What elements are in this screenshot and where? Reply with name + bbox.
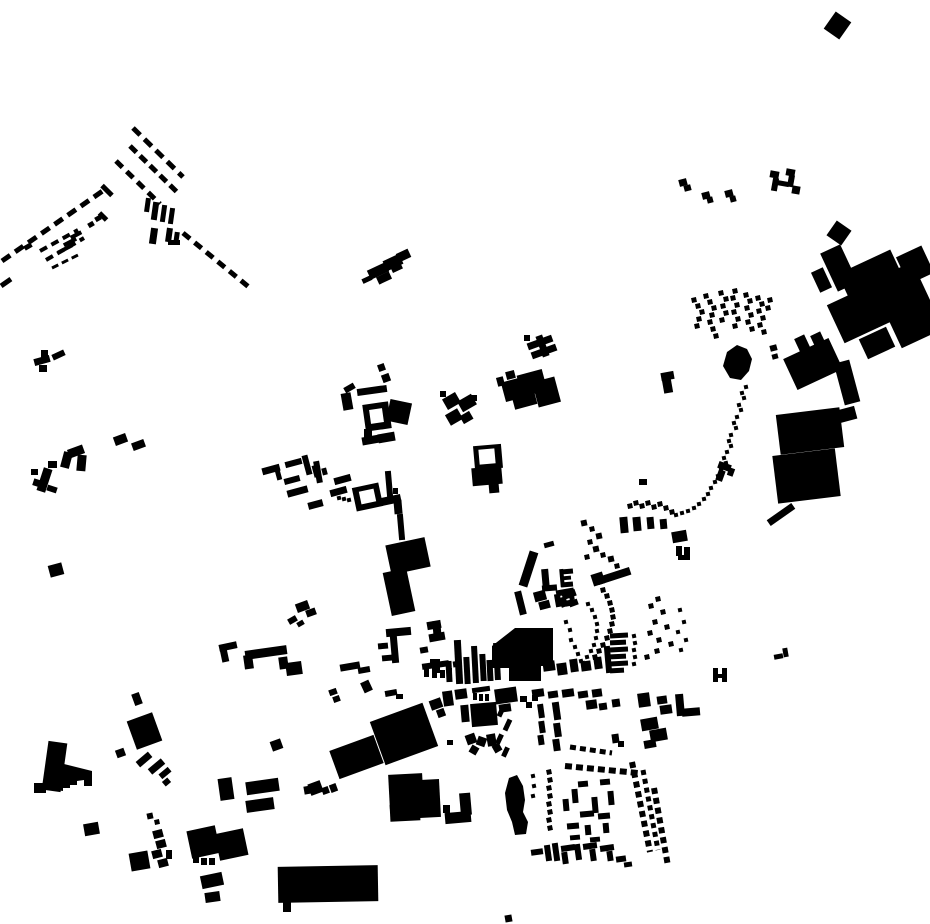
building-footprint bbox=[151, 849, 163, 859]
building-footprint bbox=[343, 383, 356, 394]
building-footprint bbox=[501, 746, 510, 757]
building-footprint bbox=[115, 748, 126, 759]
small-building-dot bbox=[568, 628, 573, 633]
small-building-dot bbox=[579, 659, 584, 664]
small-building-dot bbox=[731, 309, 737, 315]
small-building-dot bbox=[734, 426, 739, 431]
small-building-dot bbox=[655, 596, 661, 602]
building-footprint bbox=[424, 669, 429, 677]
building-footprint bbox=[278, 865, 379, 903]
building-footprint bbox=[378, 643, 388, 650]
small-building-dot bbox=[697, 502, 702, 507]
building-footprint bbox=[639, 479, 647, 485]
small-building-dot bbox=[546, 817, 552, 823]
small-building-dot bbox=[573, 645, 578, 650]
building-footprint bbox=[149, 228, 158, 245]
small-building-dot bbox=[760, 315, 766, 321]
small-building-dot bbox=[707, 319, 713, 325]
building-footprint bbox=[574, 844, 582, 861]
small-building-dot bbox=[547, 793, 553, 799]
figure-ground-map bbox=[0, 0, 930, 924]
building-footprint bbox=[285, 661, 303, 676]
building-footprint bbox=[286, 485, 308, 497]
small-building-dot bbox=[744, 385, 749, 390]
building-footprint bbox=[396, 694, 403, 699]
building-footprint bbox=[519, 550, 539, 587]
small-building-dot bbox=[716, 474, 721, 479]
small-building-dot bbox=[531, 794, 536, 799]
building-footprint bbox=[285, 458, 303, 468]
building-footprint bbox=[553, 723, 562, 738]
small-building-dot bbox=[742, 396, 747, 401]
building-footprint bbox=[548, 690, 559, 698]
building-footprint bbox=[357, 385, 388, 396]
building-footprint bbox=[430, 659, 440, 666]
small-building-dot bbox=[592, 545, 599, 552]
building-footprint bbox=[607, 791, 614, 805]
building-footprint bbox=[46, 485, 57, 494]
small-building-dot bbox=[654, 648, 660, 654]
building-footprint bbox=[532, 688, 545, 698]
small-building-dot bbox=[713, 333, 719, 339]
small-building-dot bbox=[709, 312, 715, 318]
building-footprint bbox=[443, 805, 450, 813]
terraced-row bbox=[570, 747, 612, 753]
building-footprint bbox=[471, 646, 479, 683]
building-footprint bbox=[39, 365, 47, 372]
building-footprint bbox=[447, 740, 453, 745]
map-canvas bbox=[0, 0, 930, 924]
small-building-dot bbox=[686, 509, 691, 514]
building-footprint bbox=[340, 661, 361, 671]
building-footprint bbox=[772, 448, 840, 503]
small-building-dot bbox=[663, 505, 669, 511]
building-footprint bbox=[473, 693, 477, 700]
small-building-dot bbox=[734, 302, 740, 308]
building-footprint bbox=[168, 240, 180, 245]
small-building-dot bbox=[735, 415, 740, 420]
building-footprint bbox=[168, 208, 175, 225]
building-footprint bbox=[578, 781, 588, 788]
building-footprint bbox=[220, 648, 230, 662]
small-building-dot bbox=[678, 608, 683, 613]
small-building-dot bbox=[547, 777, 553, 783]
building-footprint bbox=[131, 692, 143, 706]
building-footprint bbox=[34, 783, 46, 793]
small-building-dot bbox=[146, 812, 153, 819]
building-footprint bbox=[100, 184, 113, 197]
building-footprint bbox=[578, 690, 589, 698]
building-footprint bbox=[611, 698, 620, 707]
building-footprint bbox=[329, 486, 347, 497]
small-building-dot bbox=[729, 433, 734, 438]
building-footprint bbox=[514, 591, 527, 616]
small-building-dot bbox=[647, 630, 653, 636]
building-footprint bbox=[218, 777, 235, 801]
building-footprint bbox=[436, 708, 446, 718]
building-footprint bbox=[390, 803, 421, 822]
building-footprint-polygon bbox=[492, 628, 553, 681]
small-building-dot bbox=[532, 784, 537, 789]
small-building-dot bbox=[546, 769, 552, 775]
small-building-dot bbox=[743, 292, 749, 298]
building-footprint bbox=[544, 845, 552, 862]
building-footprint bbox=[41, 350, 48, 359]
terraced-row bbox=[52, 255, 78, 268]
small-building-dot bbox=[724, 461, 729, 466]
building-footprint bbox=[361, 275, 372, 284]
small-building-dot bbox=[627, 503, 633, 509]
small-building-dot bbox=[725, 450, 730, 455]
small-building-dot bbox=[757, 322, 763, 328]
small-building-dot bbox=[727, 439, 732, 444]
small-building-dot bbox=[709, 486, 714, 491]
small-building-dot bbox=[590, 608, 595, 613]
small-building-dot bbox=[740, 391, 745, 396]
building-footprint bbox=[215, 828, 249, 860]
small-building-dot bbox=[547, 809, 553, 815]
building-footprint bbox=[454, 640, 463, 684]
building-footprint bbox=[610, 654, 626, 660]
small-building-dot bbox=[569, 638, 574, 643]
small-building-dot bbox=[767, 297, 773, 303]
building-footprint bbox=[245, 778, 279, 795]
building-footprint bbox=[662, 378, 673, 393]
small-building-dot bbox=[723, 296, 729, 302]
building-footprint bbox=[87, 221, 95, 228]
terraced-row bbox=[133, 128, 183, 177]
building-footprint bbox=[782, 648, 788, 658]
building-footprint bbox=[152, 829, 164, 839]
small-building-dot bbox=[711, 305, 717, 311]
building-footprint bbox=[538, 721, 546, 734]
building-footprint bbox=[610, 668, 624, 674]
building-footprint bbox=[552, 739, 561, 752]
building-footprint bbox=[598, 812, 610, 819]
building-footprint bbox=[496, 376, 505, 387]
small-building-dot bbox=[607, 600, 613, 606]
small-building-dot bbox=[656, 637, 662, 643]
building-footprint bbox=[590, 837, 600, 843]
building-footprint bbox=[321, 786, 330, 795]
building-footprint bbox=[463, 657, 470, 684]
building-footprint bbox=[377, 432, 395, 444]
small-building-dot bbox=[600, 587, 606, 593]
small-building-dot bbox=[722, 456, 727, 461]
small-building-dot bbox=[745, 319, 751, 325]
building-footprint bbox=[31, 469, 38, 475]
small-building-dot bbox=[720, 303, 726, 309]
building-footprint bbox=[397, 514, 405, 540]
building-footprint bbox=[332, 695, 341, 703]
building-footprint bbox=[329, 735, 383, 779]
small-building-dot bbox=[633, 641, 638, 646]
small-building-dot bbox=[652, 619, 658, 625]
building-footprint bbox=[505, 370, 516, 380]
building-footprint bbox=[671, 530, 688, 543]
small-building-dot bbox=[587, 539, 593, 545]
building-footprint bbox=[520, 696, 527, 702]
building-footprint bbox=[834, 360, 861, 406]
small-building-dot bbox=[737, 403, 742, 408]
building-footprint bbox=[476, 736, 488, 748]
building-footprint bbox=[186, 825, 220, 858]
building-footprint bbox=[0, 277, 12, 288]
small-building-dot bbox=[154, 819, 160, 825]
small-building-dot bbox=[347, 498, 352, 503]
building-footprint bbox=[632, 517, 641, 532]
small-building-dot bbox=[657, 501, 663, 507]
small-building-dot bbox=[584, 554, 590, 560]
building-footprint bbox=[610, 661, 628, 667]
building-footprint bbox=[526, 702, 532, 708]
small-building-dot bbox=[664, 624, 670, 630]
building-footprint bbox=[570, 835, 580, 841]
building-footprint bbox=[640, 717, 659, 732]
small-building-dot bbox=[337, 496, 342, 501]
building-footprint bbox=[485, 694, 489, 701]
small-building-dot bbox=[765, 305, 771, 311]
small-building-dot bbox=[607, 628, 613, 634]
small-building-dot bbox=[744, 305, 750, 311]
building-footprint bbox=[201, 858, 207, 865]
building-footprint bbox=[769, 344, 777, 352]
building-footprint bbox=[590, 571, 605, 586]
building-footprint bbox=[600, 779, 610, 786]
building-footprint bbox=[616, 855, 627, 862]
building-footprint bbox=[454, 688, 467, 700]
building-footprint bbox=[360, 680, 373, 694]
building-footprint bbox=[442, 690, 454, 706]
building-footprint bbox=[537, 704, 545, 719]
small-building-dot bbox=[632, 634, 637, 639]
building-footprint bbox=[567, 822, 579, 829]
building-footprint bbox=[479, 694, 483, 701]
building-footprint bbox=[610, 640, 626, 646]
building-footprint bbox=[245, 797, 274, 813]
small-building-dot bbox=[342, 497, 347, 502]
building-footprint bbox=[302, 455, 313, 476]
small-building-dot bbox=[668, 641, 674, 647]
small-building-dot bbox=[596, 648, 602, 654]
small-building-dot bbox=[696, 316, 702, 322]
building-footprint bbox=[385, 689, 398, 697]
building-footprint-polygon bbox=[723, 345, 752, 380]
small-building-dot bbox=[748, 312, 754, 318]
building-footprint bbox=[676, 546, 682, 556]
small-building-dot bbox=[707, 299, 713, 305]
small-building-dot bbox=[595, 532, 602, 539]
small-building-dot bbox=[732, 323, 738, 329]
small-building-dot bbox=[546, 785, 552, 791]
building-footprint bbox=[200, 872, 224, 889]
building-footprint bbox=[287, 615, 298, 625]
building-footprint bbox=[385, 537, 430, 575]
building-footprint bbox=[127, 712, 163, 749]
terraced-row bbox=[565, 766, 638, 773]
building-footprint bbox=[603, 823, 610, 833]
building-footprint bbox=[533, 590, 547, 603]
building-footprint bbox=[382, 655, 392, 662]
building-footprint bbox=[296, 620, 305, 628]
small-building-dot bbox=[595, 622, 600, 627]
building-footprint bbox=[610, 647, 628, 653]
building-footprint bbox=[503, 719, 513, 732]
building-footprint bbox=[504, 914, 512, 922]
building-footprint bbox=[144, 198, 151, 213]
building-footprint bbox=[283, 475, 300, 485]
small-building-dot bbox=[600, 642, 606, 648]
building-footprint bbox=[341, 392, 354, 410]
small-building-dot bbox=[645, 500, 651, 506]
building-footprint bbox=[48, 562, 65, 577]
terraced-row bbox=[183, 233, 250, 288]
building-footprint bbox=[561, 844, 576, 852]
courtyard-hole bbox=[478, 448, 495, 464]
building-footprint bbox=[136, 752, 153, 768]
small-building-dot bbox=[589, 649, 594, 654]
building-footprint bbox=[643, 739, 656, 749]
small-building-dot bbox=[633, 500, 639, 506]
small-building-dot bbox=[610, 614, 616, 620]
building-footprint bbox=[580, 810, 594, 817]
small-building-dot bbox=[730, 295, 736, 301]
building-footprint bbox=[562, 799, 569, 811]
building-footprint bbox=[129, 850, 151, 871]
small-building-dot bbox=[576, 652, 581, 657]
building-footprint bbox=[469, 745, 480, 756]
small-building-dot bbox=[718, 290, 724, 296]
small-building-dot bbox=[679, 648, 684, 653]
building-footprint bbox=[571, 789, 578, 803]
small-building-dot bbox=[756, 308, 762, 314]
building-footprint bbox=[495, 733, 504, 744]
small-building-dot bbox=[703, 293, 709, 299]
building-footprint bbox=[432, 621, 442, 640]
small-building-dot bbox=[719, 467, 724, 472]
small-building-dot bbox=[589, 526, 595, 532]
building-footprint bbox=[307, 499, 323, 510]
small-building-dot bbox=[585, 655, 590, 660]
small-building-dot bbox=[682, 620, 687, 625]
building-footprint bbox=[209, 858, 215, 865]
building-footprint bbox=[440, 391, 446, 397]
building-footprint bbox=[459, 411, 473, 424]
building-footprint bbox=[494, 687, 518, 705]
small-building-dot bbox=[761, 329, 767, 335]
small-building-dot bbox=[633, 655, 638, 660]
building-footprint bbox=[660, 519, 668, 530]
small-building-dot bbox=[531, 774, 536, 779]
building-footprint bbox=[445, 661, 452, 682]
building-footprint bbox=[83, 822, 100, 836]
small-building-dot bbox=[592, 654, 598, 660]
building-footprint bbox=[826, 220, 851, 245]
building-footprint bbox=[48, 461, 57, 468]
building-footprint bbox=[283, 902, 291, 912]
building-footprint bbox=[774, 653, 784, 659]
building-footprint bbox=[637, 692, 651, 708]
small-building-dot bbox=[702, 497, 707, 502]
building-footprint bbox=[155, 839, 167, 849]
building-footprint bbox=[556, 662, 568, 675]
small-building-dot bbox=[691, 297, 697, 303]
building-footprint bbox=[377, 363, 386, 372]
building-footprint bbox=[589, 849, 597, 862]
building-footprint bbox=[569, 659, 579, 673]
small-building-dot bbox=[732, 288, 738, 294]
building-footprint bbox=[682, 707, 701, 717]
building-footprint bbox=[393, 500, 402, 515]
building-footprint bbox=[328, 688, 338, 696]
building-footprint bbox=[791, 185, 800, 194]
small-building-dot bbox=[755, 295, 761, 301]
small-building-dot bbox=[595, 629, 600, 634]
building-footprint bbox=[472, 686, 491, 693]
building-footprint bbox=[619, 517, 628, 534]
building-footprint bbox=[659, 704, 672, 715]
small-building-dot bbox=[710, 326, 716, 332]
building-footprint bbox=[157, 858, 169, 868]
building-footprint bbox=[561, 852, 569, 865]
building-footprint bbox=[769, 170, 779, 178]
building-footprint bbox=[393, 488, 398, 494]
small-building-dot bbox=[604, 635, 610, 641]
building-footprint bbox=[275, 470, 282, 481]
small-building-dot bbox=[564, 620, 569, 625]
small-building-dot bbox=[639, 503, 645, 509]
building-footprint bbox=[479, 654, 486, 681]
small-building-dot bbox=[749, 326, 755, 332]
small-building-dot bbox=[644, 654, 650, 660]
small-building-dot bbox=[594, 636, 599, 641]
small-building-dot bbox=[732, 421, 737, 426]
building-footprint bbox=[270, 738, 284, 751]
small-building-dot bbox=[723, 310, 729, 316]
building-footprint bbox=[333, 474, 351, 485]
building-footprint bbox=[538, 600, 551, 611]
small-building-dot bbox=[614, 563, 620, 569]
building-footprint bbox=[385, 471, 393, 497]
small-building-dot bbox=[747, 298, 753, 304]
small-building-dot bbox=[593, 615, 598, 620]
building-footprint bbox=[162, 777, 171, 786]
courtyard-hole bbox=[369, 408, 384, 424]
small-building-dot bbox=[759, 301, 765, 307]
building-footprint bbox=[656, 695, 667, 704]
building-footprint bbox=[383, 568, 416, 616]
small-building-dot bbox=[609, 607, 615, 613]
building-footprint bbox=[76, 455, 86, 472]
building-footprint bbox=[585, 825, 592, 835]
building-footprint bbox=[767, 503, 796, 526]
building-footprint bbox=[537, 735, 544, 746]
building-footprint bbox=[489, 484, 500, 494]
building-footprint bbox=[646, 517, 654, 530]
small-building-dot bbox=[695, 303, 701, 309]
small-building-dot bbox=[651, 504, 657, 510]
building-footprint bbox=[471, 395, 477, 401]
building-footprint bbox=[329, 783, 338, 793]
building-footprint bbox=[618, 741, 624, 747]
building-footprint bbox=[585, 699, 597, 709]
small-building-dot bbox=[669, 509, 675, 515]
small-building-dot bbox=[600, 552, 606, 558]
building-footprint bbox=[714, 674, 726, 678]
terraced-row bbox=[632, 762, 650, 852]
small-building-dot bbox=[609, 621, 615, 627]
small-building-dot bbox=[713, 480, 718, 485]
